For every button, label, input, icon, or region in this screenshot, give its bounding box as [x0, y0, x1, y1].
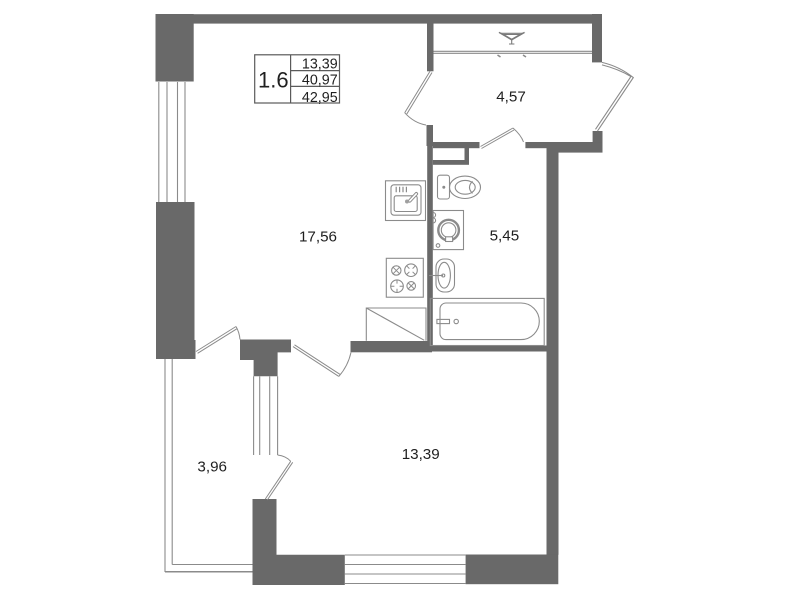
svg-text:3,96: 3,96 — [197, 458, 227, 475]
svg-text:40,97: 40,97 — [302, 73, 338, 89]
svg-text:17,56: 17,56 — [299, 228, 337, 245]
svg-text:5,45: 5,45 — [490, 227, 520, 244]
svg-text:13,39: 13,39 — [402, 446, 440, 463]
svg-text:13,39: 13,39 — [302, 57, 338, 73]
svg-text:4,57: 4,57 — [496, 88, 526, 105]
svg-text:1.6: 1.6 — [258, 68, 289, 93]
svg-text:42,95: 42,95 — [302, 90, 338, 106]
